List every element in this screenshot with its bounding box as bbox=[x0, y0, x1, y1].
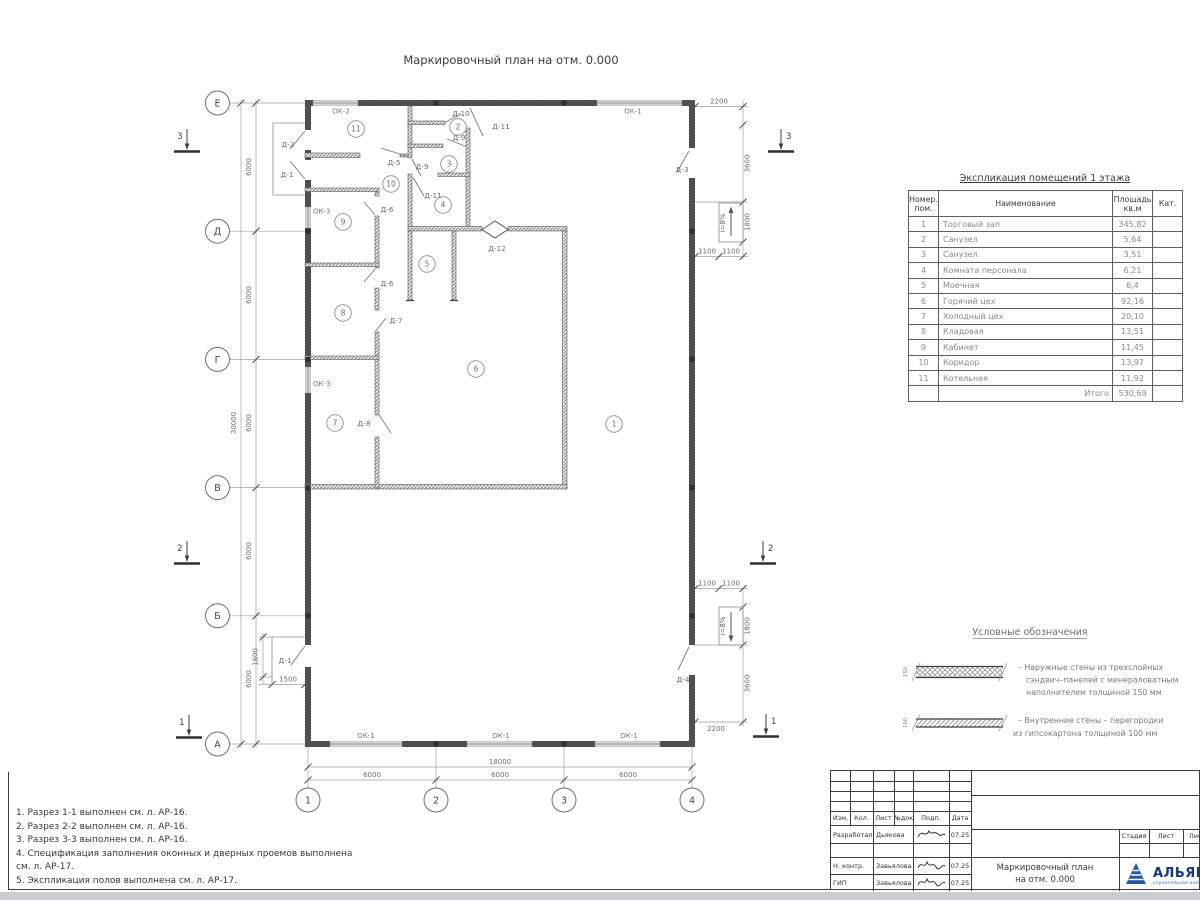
axis-label: Б bbox=[214, 611, 221, 622]
tb-stage-header: Стадия bbox=[1119, 832, 1149, 840]
col-header-area: Площадькв.м bbox=[1113, 191, 1153, 217]
dim-label: 3600 bbox=[744, 675, 752, 693]
interior-walls bbox=[305, 106, 567, 489]
legend-text: – Внутренние стены – перегородки bbox=[1018, 716, 1163, 725]
axis-label: 2 bbox=[433, 795, 439, 806]
company-logo-icon bbox=[1125, 861, 1149, 887]
entry-porch-outlines bbox=[272, 123, 305, 685]
dim-label: 6000 bbox=[491, 771, 509, 779]
door-label: Д-1 bbox=[279, 656, 292, 665]
ramp-slope-label: i=8% bbox=[719, 616, 727, 635]
door-label: Д-9 bbox=[416, 162, 429, 171]
tb-date: 07.25 bbox=[949, 862, 971, 870]
dim-label: 30000 bbox=[230, 412, 238, 434]
door-label: Д-9 bbox=[453, 133, 466, 142]
door-label: Д-3 bbox=[676, 165, 689, 174]
plan-title: Маркировочный план на отм. 0.000 bbox=[403, 53, 618, 67]
sheet-frame-bottom bbox=[8, 889, 1200, 890]
door-label: Д-2 bbox=[282, 140, 295, 149]
legend-text: наполнителем толщиной 150 мм bbox=[1026, 688, 1162, 697]
tb-name: Завьялова bbox=[876, 862, 912, 870]
room-number: 6 bbox=[474, 365, 479, 374]
window-label: ОК-1 bbox=[620, 732, 637, 740]
room-number: 8 bbox=[341, 309, 346, 318]
table-row: 8Кладовая13,51 bbox=[909, 324, 1183, 339]
tb-col-data: Дата bbox=[949, 814, 971, 822]
table-row: 2Санузел5,64 bbox=[909, 232, 1183, 247]
legend-title: Условные обозначения bbox=[972, 627, 1087, 638]
tb-role: ГИП bbox=[833, 879, 847, 887]
dim-label: 1100 bbox=[698, 580, 716, 588]
legend-text: из гипсокартона толщиной 100 мм bbox=[1013, 729, 1157, 738]
door-label: Д-11 bbox=[492, 122, 510, 131]
dim-label: 6000 bbox=[245, 670, 253, 688]
axis-label: 1 bbox=[305, 795, 311, 806]
tb-col-podp: Подп. bbox=[913, 814, 949, 822]
note-line: 3. Разрез 3-3 выполнен см. л. АР-16. bbox=[16, 834, 536, 848]
signature bbox=[915, 858, 947, 873]
door-label: Д-1 bbox=[281, 170, 294, 179]
table-row: 1Торговый зал345,82 bbox=[909, 217, 1183, 232]
window-label: ОК-3 bbox=[313, 380, 330, 388]
axis-label: 4 bbox=[689, 795, 695, 806]
window-label: ОК-1 bbox=[624, 108, 641, 116]
dim-label: 1800 bbox=[252, 648, 260, 666]
room-number: 4 bbox=[441, 201, 446, 210]
dim-label: 6000 bbox=[245, 414, 253, 432]
floor-plan-drawing: Маркировочный план на отм. 0.000 6000 60… bbox=[0, 0, 1200, 900]
axis-bubble-labels: Е Д Г В Б А 1 2 3 4 bbox=[214, 98, 695, 806]
dim-label: 6000 bbox=[363, 771, 381, 779]
note-line: 5. Экспликация полов выполнена см. л. АР… bbox=[16, 875, 536, 889]
tb-col-izm: Изм. bbox=[831, 814, 850, 822]
dim-label: 2200 bbox=[710, 98, 728, 106]
col-header-name: Наименование bbox=[939, 191, 1113, 217]
axis-label: Д bbox=[214, 227, 221, 238]
title-block: Изм. Кол. Лист №док Подп. Дата Разработа… bbox=[830, 770, 1200, 890]
section-label: 2 bbox=[768, 544, 773, 554]
section-label: 2 bbox=[177, 544, 182, 554]
door-label: Д-6 bbox=[381, 279, 394, 288]
note-line: см. л. АР-17. bbox=[16, 861, 536, 875]
table-row: 6Горячий цех92,16 bbox=[909, 293, 1183, 308]
window-label: ОК-1 bbox=[492, 732, 509, 740]
dim-label: 6000 bbox=[245, 158, 253, 176]
dim-label: 1800 bbox=[744, 213, 752, 231]
legend-thickness-label: 100 bbox=[903, 718, 909, 728]
dim-label: 1800 bbox=[744, 617, 752, 635]
door-label: Д-11 bbox=[424, 191, 442, 200]
tb-date: 07.25 bbox=[949, 831, 971, 839]
opening-diamond-d12 bbox=[482, 221, 508, 238]
dim-label: 2200 bbox=[707, 725, 725, 733]
legend-thickness-label: 150 bbox=[903, 667, 909, 677]
dim-label: 1500 bbox=[279, 676, 297, 684]
section-label: 3 bbox=[786, 132, 791, 142]
dim-label: 1100 bbox=[698, 248, 716, 256]
room-number: 11 bbox=[351, 125, 361, 134]
dim-label: 18000 bbox=[489, 758, 511, 766]
legend-swatch-exterior-wall bbox=[916, 667, 1003, 678]
room-number: 9 bbox=[341, 218, 346, 227]
axis-bubbles bbox=[206, 91, 705, 812]
room-number: 10 bbox=[386, 180, 396, 189]
room-number: 2 bbox=[456, 123, 461, 132]
room-number: 7 bbox=[333, 419, 338, 428]
dim-ticks bbox=[238, 100, 747, 784]
room-schedule-table: Номер.пом. Наименование Площадькв.м Кат.… bbox=[908, 190, 1183, 402]
signature bbox=[915, 875, 947, 890]
door-label: Д-4 bbox=[677, 675, 690, 684]
table-row: 7Холодный цех20,10 bbox=[909, 309, 1183, 324]
table-row: 11Котельная11,92 bbox=[909, 370, 1183, 385]
tb-col-kol: Кол. bbox=[850, 814, 873, 822]
tb-col-list: Лист bbox=[873, 814, 894, 822]
table-total-row: Итого530,69 bbox=[909, 386, 1183, 401]
company-subtitle: строительная компания bbox=[1153, 881, 1200, 886]
door-label: Д-7 bbox=[390, 316, 403, 325]
tb-role: Разработал bbox=[833, 831, 872, 839]
legend-text: – Наружные стены из трехслойных bbox=[1018, 663, 1163, 672]
tb-role: Н. контр. bbox=[833, 862, 864, 870]
signature bbox=[915, 826, 947, 841]
note-line: 4. Спецификация заполнения оконных и две… bbox=[16, 848, 536, 862]
door-label: Д-12 bbox=[488, 244, 506, 253]
col-header-number: Номер.пом. bbox=[909, 191, 939, 217]
axis-label: Г bbox=[215, 355, 221, 366]
col-header-cat: Кат. bbox=[1153, 191, 1183, 217]
legend-text: сэндвич–панелей с минераловатным bbox=[1026, 676, 1179, 685]
table-row: 9Кабинет11,45 bbox=[909, 340, 1183, 355]
page-edge bbox=[0, 892, 1200, 900]
table-row: 10Коридор13,97 bbox=[909, 355, 1183, 370]
note-line: 2. Разрез 2-2 выполнен см. л. АР-16. bbox=[16, 821, 536, 835]
dim-label: 3600 bbox=[744, 155, 752, 173]
room-schedule-title: Экспликация помещений 1 этажа bbox=[908, 173, 1182, 184]
tb-sheets-header: Листов bbox=[1183, 832, 1200, 840]
section-label: 1 bbox=[771, 717, 776, 727]
axis-label: В bbox=[214, 483, 221, 494]
room-number: 3 bbox=[447, 160, 452, 169]
window-label: ОК-3 bbox=[313, 208, 330, 216]
notes-block: 1. Разрез 1-1 выполнен см. л. АР-16. 2. … bbox=[16, 807, 536, 888]
tb-sheet-header: Лист bbox=[1149, 832, 1183, 840]
door-label: Д-6 bbox=[381, 205, 394, 214]
door-labels: Д-2 Д-1 Д-5 Д-9 Д-10 Д-11 Д-9 Д-11 Д-12 … bbox=[279, 109, 690, 684]
table-row: 5Моечная6,4 bbox=[909, 278, 1183, 293]
table-header-row: Номер.пом. Наименование Площадькв.м Кат. bbox=[909, 191, 1183, 217]
room-number: 5 bbox=[425, 260, 430, 269]
table-row: 3Санузел3,51 bbox=[909, 247, 1183, 262]
dim-label: 6000 bbox=[245, 542, 253, 560]
door-label: Д-8 bbox=[358, 419, 371, 428]
room-numbers: 1 2 3 4 5 6 7 8 9 10 11 bbox=[327, 119, 623, 433]
window-label: ОК-2 bbox=[332, 108, 349, 116]
axis-label: А bbox=[214, 739, 221, 750]
dim-label: 1100 bbox=[722, 248, 740, 256]
axis-label: 3 bbox=[561, 795, 567, 806]
dim-label: 1100 bbox=[722, 580, 740, 588]
room-number: 1 bbox=[612, 420, 617, 429]
sheet-frame-left bbox=[8, 772, 9, 890]
section-label: 3 bbox=[177, 132, 182, 142]
tb-name: Завьялова bbox=[876, 879, 912, 887]
tb-name: Дьякова bbox=[876, 831, 905, 839]
tb-date: 07.25 bbox=[949, 879, 971, 887]
dim-label: 6000 bbox=[245, 286, 253, 304]
axis-label: Е bbox=[214, 98, 220, 109]
table-row: 4Комната персонала6,21 bbox=[909, 263, 1183, 278]
doc-title-line1: Маркировочный план bbox=[971, 863, 1119, 873]
door-symbols bbox=[290, 108, 689, 670]
door-label: Д-10 bbox=[452, 109, 470, 118]
section-markers: 3 2 1 3 2 1 bbox=[174, 129, 794, 738]
tb-col-ndok: №док bbox=[894, 814, 913, 822]
drawing-sheet: Маркировочный план на отм. 0.000 6000 60… bbox=[0, 0, 1200, 900]
section-label: 1 bbox=[179, 718, 184, 728]
door-label: Д-5 bbox=[388, 158, 401, 167]
company-name: АЛЬЯНС bbox=[1153, 866, 1200, 881]
doc-title-line2: на отм. 0.000 bbox=[971, 875, 1119, 885]
legend: Условные обозначения 150 – Наружные стен… bbox=[903, 627, 1179, 738]
legend-swatch-interior-wall bbox=[916, 719, 1003, 727]
ramp-slope-label: i=8% bbox=[719, 213, 727, 232]
note-line: 1. Разрез 1-1 выполнен см. л. АР-16. bbox=[16, 807, 536, 821]
dim-label: 6000 bbox=[619, 771, 637, 779]
window-label: ОК-1 bbox=[357, 732, 374, 740]
